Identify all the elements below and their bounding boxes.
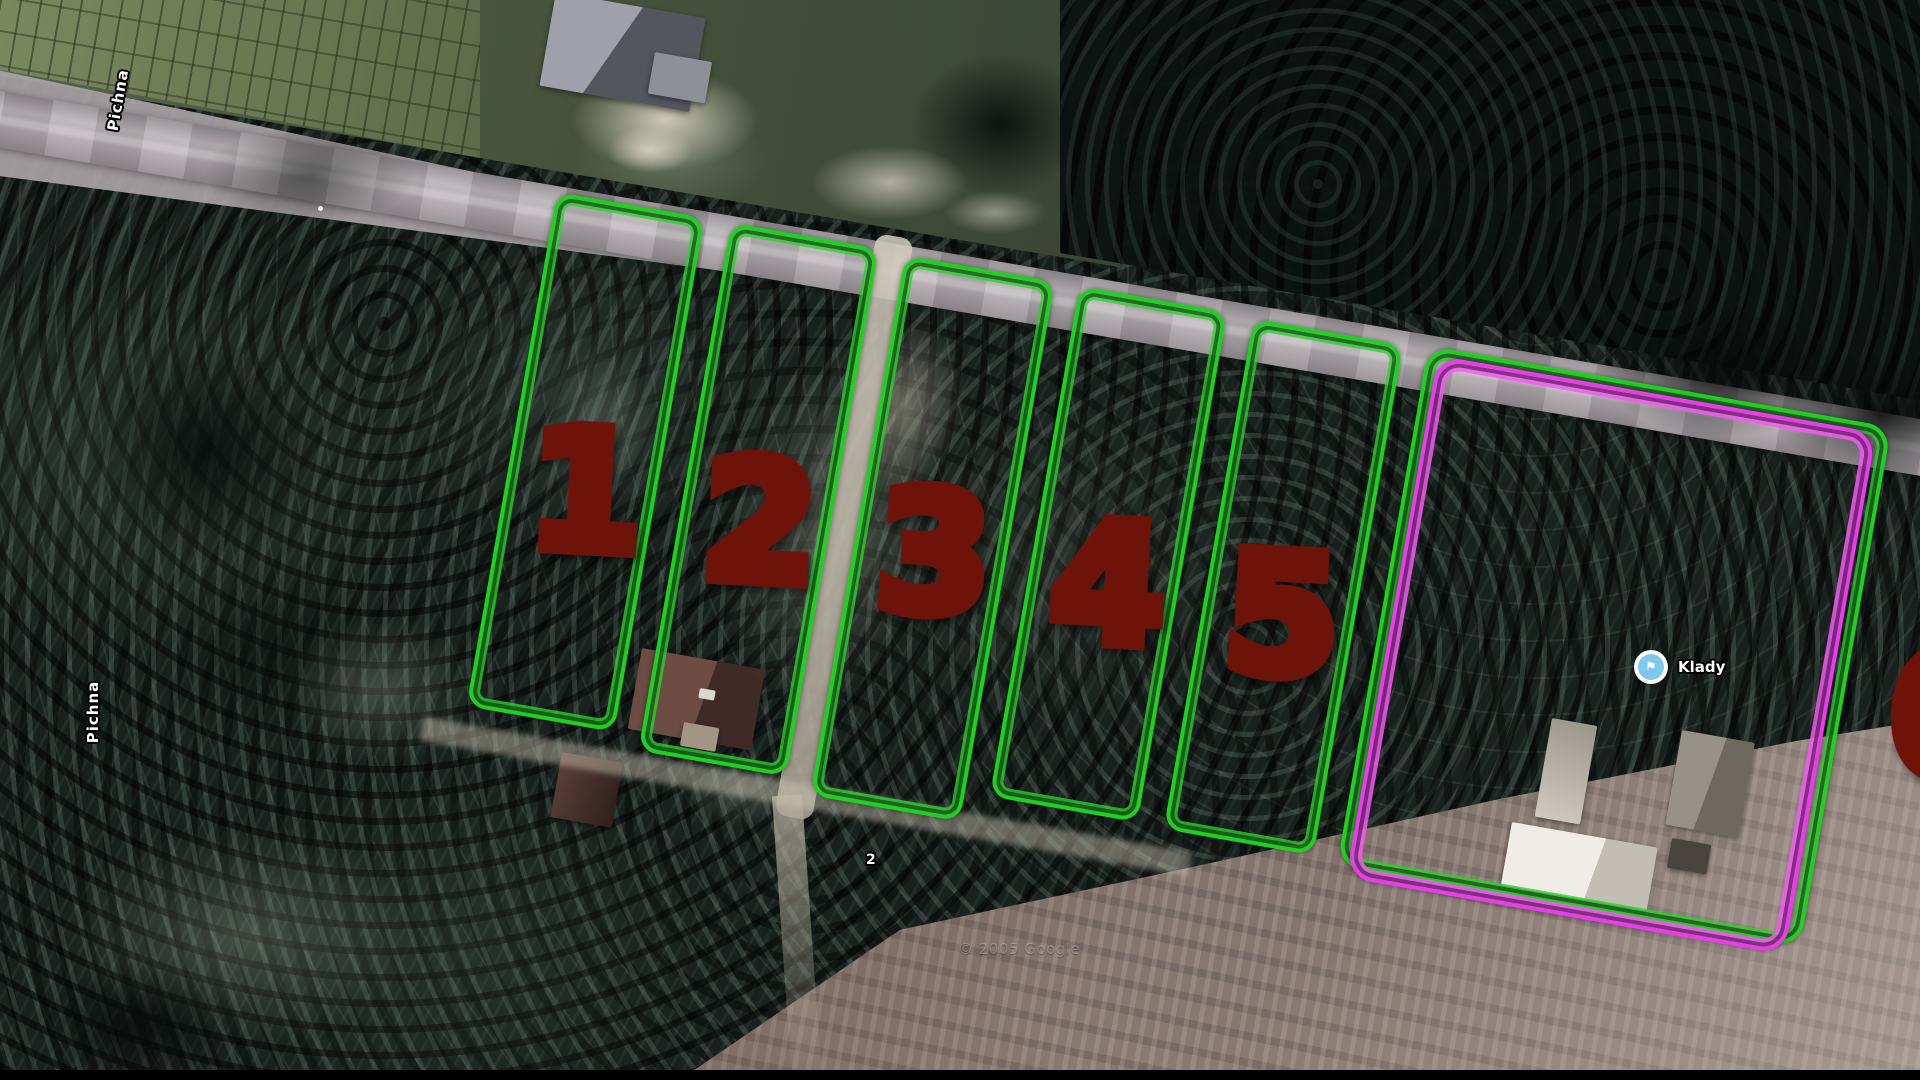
- plot-number-stroke: 4: [1046, 500, 1169, 671]
- plot-number-stroke: 3: [872, 469, 995, 640]
- plot-number-2: 2 2: [698, 438, 821, 609]
- satellite-map-view[interactable]: 1 1 2 2 3 3 4 4 5 5 6 6 Pichna Pichna ⚑ …: [0, 0, 1920, 1080]
- copyright-watermark: © 2005 Google: [958, 940, 1080, 958]
- plot-number-3: 3 3: [872, 469, 995, 640]
- sandy-yard: [930, 185, 1060, 240]
- white-dot-marker: [318, 206, 323, 211]
- plot-number-stroke: 2: [698, 438, 821, 609]
- highlighted-parcel-outline[interactable]: [1346, 355, 1876, 954]
- place-label: Klady: [1678, 658, 1725, 676]
- house-number-label: 2: [866, 852, 876, 868]
- plot-number-4: 4 4: [1046, 500, 1169, 671]
- plot-number-stroke: 5: [1220, 531, 1343, 702]
- plot-number-1: 1 1: [524, 407, 647, 578]
- street-label-pichna-bottom: Pichna: [84, 681, 102, 744]
- place-marker-klady[interactable]: ⚑ Klady: [1634, 650, 1725, 684]
- poi-ring[interactable]: ⚑: [1634, 650, 1668, 684]
- plot-number-5: 5 5: [1220, 531, 1343, 702]
- letterbox-bar: [0, 1070, 1920, 1080]
- tree-shadow-on-road: [170, 110, 450, 240]
- plot-number-stroke: 1: [524, 407, 647, 578]
- flag-poi-icon: ⚑: [1638, 654, 1664, 680]
